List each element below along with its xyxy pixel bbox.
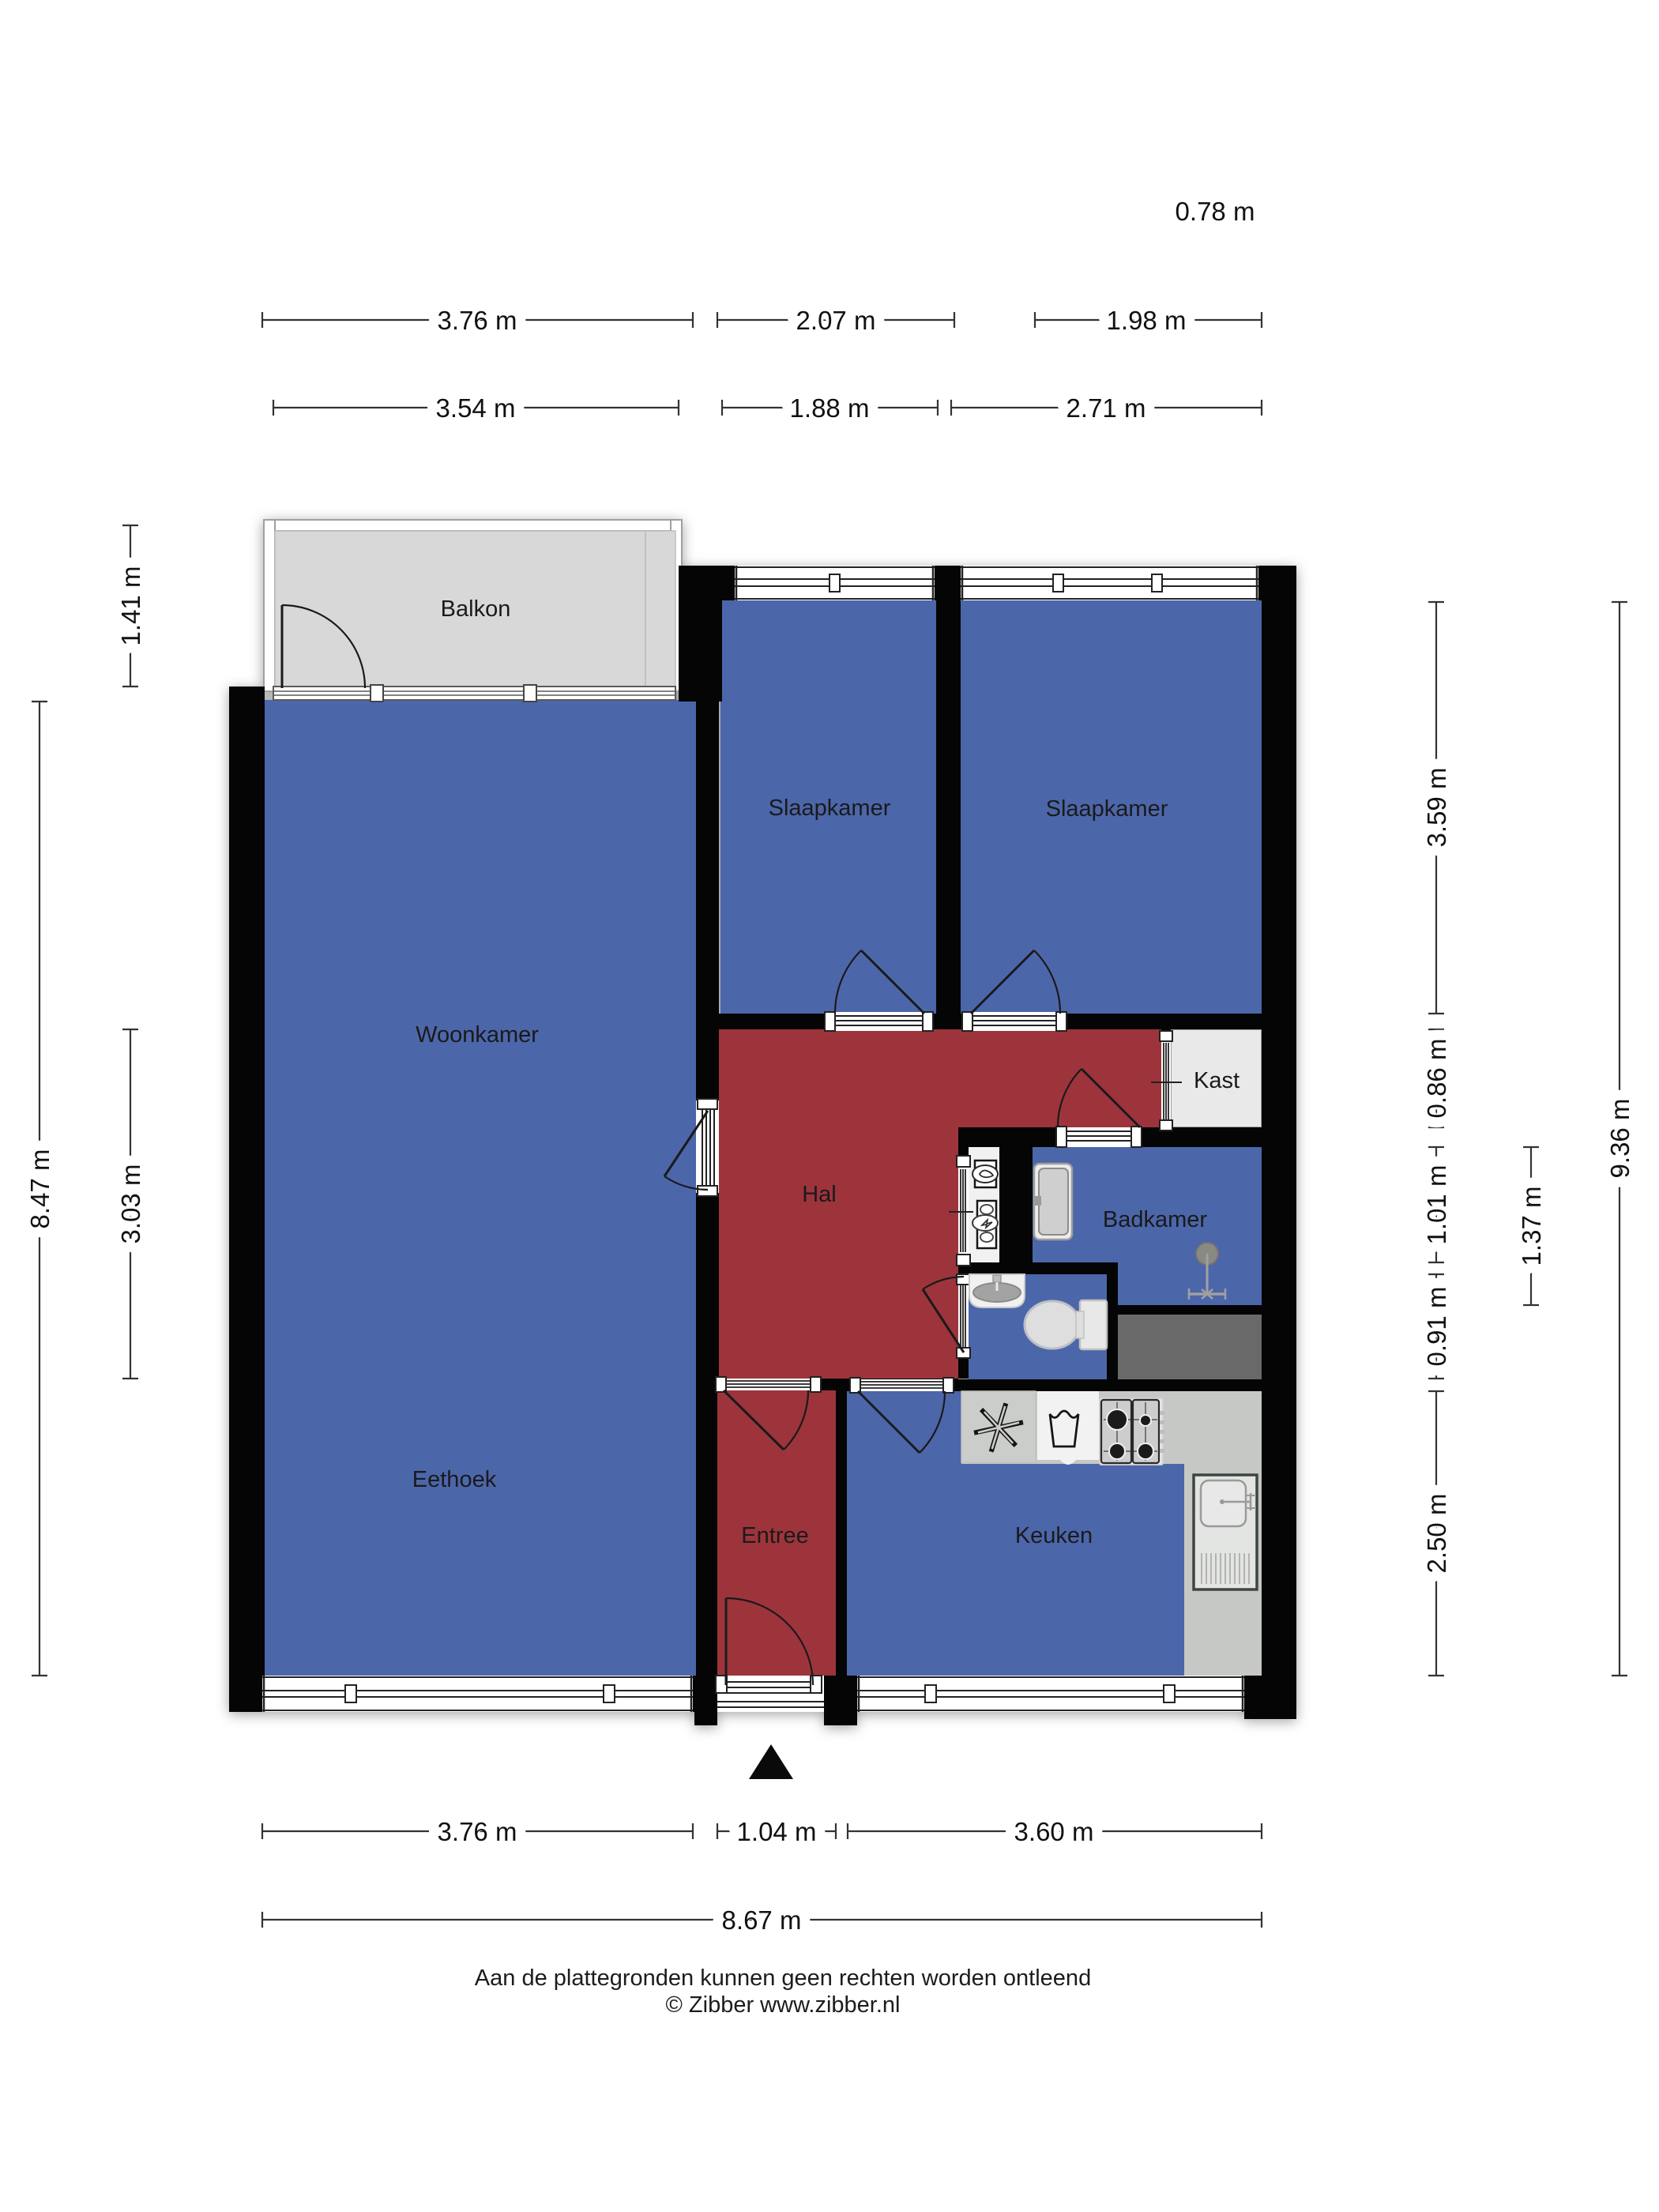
svg-text:0.78 m: 0.78 m [1176, 197, 1255, 226]
svg-text:1.37 m: 1.37 m [1517, 1187, 1546, 1266]
svg-text:Badkamer: Badkamer [1103, 1207, 1208, 1232]
svg-text:1.04 m: 1.04 m [737, 1817, 817, 1846]
svg-text:1.01 m: 1.01 m [1422, 1165, 1451, 1245]
svg-text:Slaapkamer: Slaapkamer [769, 796, 891, 821]
svg-text:Balkon: Balkon [441, 596, 511, 622]
svg-text:Eethoek: Eethoek [412, 1467, 497, 1492]
svg-text:Hal: Hal [802, 1182, 837, 1207]
svg-text:3.54 m: 3.54 m [436, 393, 516, 423]
svg-text:3.03 m: 3.03 m [116, 1164, 145, 1244]
svg-text:8.67 m: 8.67 m [722, 1905, 802, 1935]
svg-text:Keuken: Keuken [1015, 1523, 1093, 1548]
svg-text:Aan de plattegronden kunnen ge: Aan de plattegronden kunnen geen rechten… [475, 1966, 1091, 1991]
svg-text:2.50 m: 2.50 m [1422, 1494, 1451, 1574]
svg-text:© Zibber www.zibber.nl: © Zibber www.zibber.nl [666, 1992, 901, 2018]
svg-text:Kast: Kast [1194, 1068, 1240, 1093]
svg-text:Entree: Entree [741, 1523, 808, 1548]
svg-text:3.59 m: 3.59 m [1422, 768, 1451, 848]
svg-text:3.60 m: 3.60 m [1014, 1817, 1094, 1846]
svg-text:1.98 m: 1.98 m [1107, 306, 1187, 335]
svg-text:2.71 m: 2.71 m [1066, 393, 1146, 423]
svg-text:0.86 m: 0.86 m [1422, 1039, 1451, 1119]
svg-text:3.76 m: 3.76 m [438, 306, 517, 335]
svg-text:9.36 m: 9.36 m [1605, 1099, 1635, 1179]
svg-text:Woonkamer: Woonkamer [416, 1022, 539, 1048]
svg-text:3.76 m: 3.76 m [438, 1817, 517, 1846]
svg-text:1.41 m: 1.41 m [116, 566, 145, 646]
svg-text:8.47 m: 8.47 m [25, 1149, 55, 1229]
svg-text:0.91 m: 0.91 m [1422, 1287, 1451, 1367]
svg-text:2.07 m: 2.07 m [796, 306, 876, 335]
svg-text:1.88 m: 1.88 m [790, 393, 870, 423]
svg-text:Slaapkamer: Slaapkamer [1046, 796, 1168, 822]
